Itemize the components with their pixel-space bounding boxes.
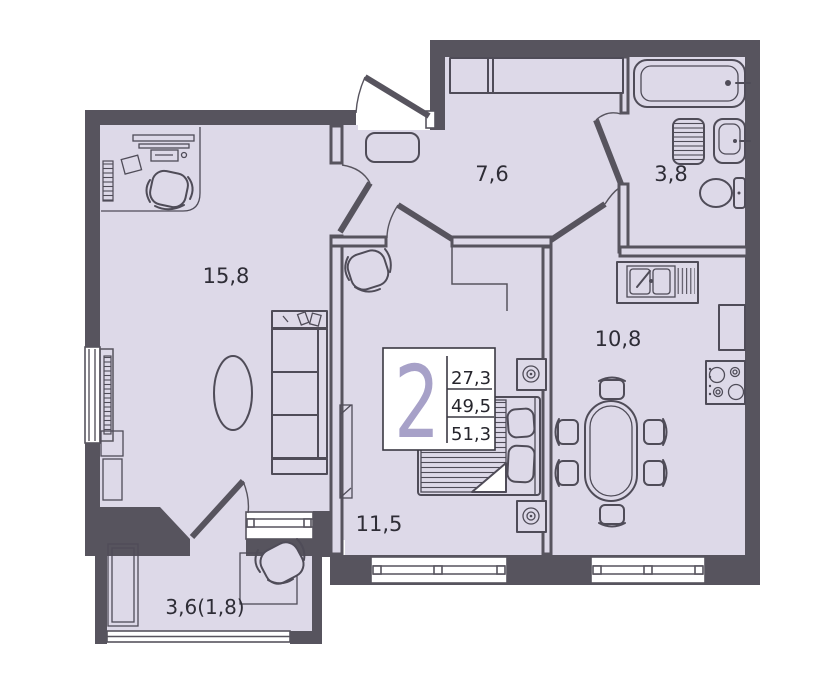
floor-area-value: 49,5 [451, 396, 491, 417]
living-window [85, 347, 113, 443]
kitchen-sink-icon [617, 262, 698, 303]
partition-living-bedroom [331, 236, 342, 554]
bathtub-icon [634, 60, 750, 107]
partition-bathroom-left [619, 184, 628, 252]
partition-bedroom-top-left [331, 237, 386, 246]
dining-chair-icon [599, 505, 625, 527]
dining-chair-icon [599, 378, 625, 400]
kitchen-counter-icon [719, 305, 745, 350]
dining-chair-icon [556, 419, 579, 445]
partition-bedroom-top-right [452, 237, 551, 246]
radiator-icon [103, 161, 113, 201]
washbasin-icon [714, 119, 750, 163]
dining-table-icon [585, 401, 637, 501]
wall-top-living [85, 110, 356, 125]
wall-right [745, 40, 760, 557]
bathroom-area-label: 3,8 [654, 162, 687, 186]
dining-chair-icon [556, 460, 579, 486]
pillow-icon [507, 445, 535, 482]
living-area-value: 27,3 [451, 368, 491, 389]
wall-top-right [430, 40, 760, 57]
floor-plan: 15,8 7,6 3,8 10,8 11,5 3,6(1,8) 2 27,3 4… [0, 0, 826, 691]
kitchen-area-label: 10,8 [595, 327, 642, 351]
info-box: 2 27,3 49,5 51,3 [383, 344, 495, 461]
balcony-door-passage [190, 513, 246, 556]
dining-chair-icon [644, 419, 667, 445]
bedroom-area-label: 11,5 [356, 512, 403, 536]
dining-chair-icon [644, 460, 667, 486]
toilet-icon [700, 178, 745, 208]
stove-icon [706, 361, 745, 404]
sofa-icon [272, 311, 327, 474]
wardrobe-icon [450, 58, 623, 93]
wall-left [85, 110, 100, 540]
balcony-wall-right [312, 537, 322, 633]
balcony-glazing [107, 631, 290, 642]
balcony-wall-left [95, 537, 107, 644]
dish-drainer [677, 268, 695, 294]
bedroom-window [371, 557, 507, 583]
entrance-rug-icon [366, 133, 419, 162]
hall-area-label: 7,6 [475, 162, 508, 186]
partition-bathroom-kitchen [620, 247, 747, 256]
floor-plan-drawing: 15,8 7,6 3,8 10,8 11,5 3,6(1,8) 2 27,3 4… [0, 0, 826, 691]
coffee-table-icon [214, 356, 252, 430]
radiator-icon [104, 356, 111, 434]
wall-light-icon [517, 359, 546, 390]
wall-light-icon [517, 501, 546, 532]
washing-machine-icon [673, 119, 704, 164]
kitchen-window [591, 557, 705, 583]
balcony-wall-corner [290, 631, 322, 644]
entrance-door [356, 77, 435, 128]
living-area-label: 15,8 [203, 264, 250, 288]
balcony-area-label: 3,6(1,8) [165, 595, 244, 619]
living-balcony-window [246, 512, 313, 539]
total-area-value: 51,3 [451, 424, 491, 445]
rooms-count: 2 [394, 344, 440, 461]
pillow-icon [507, 408, 535, 438]
partition-living-hall-upper [331, 126, 342, 163]
